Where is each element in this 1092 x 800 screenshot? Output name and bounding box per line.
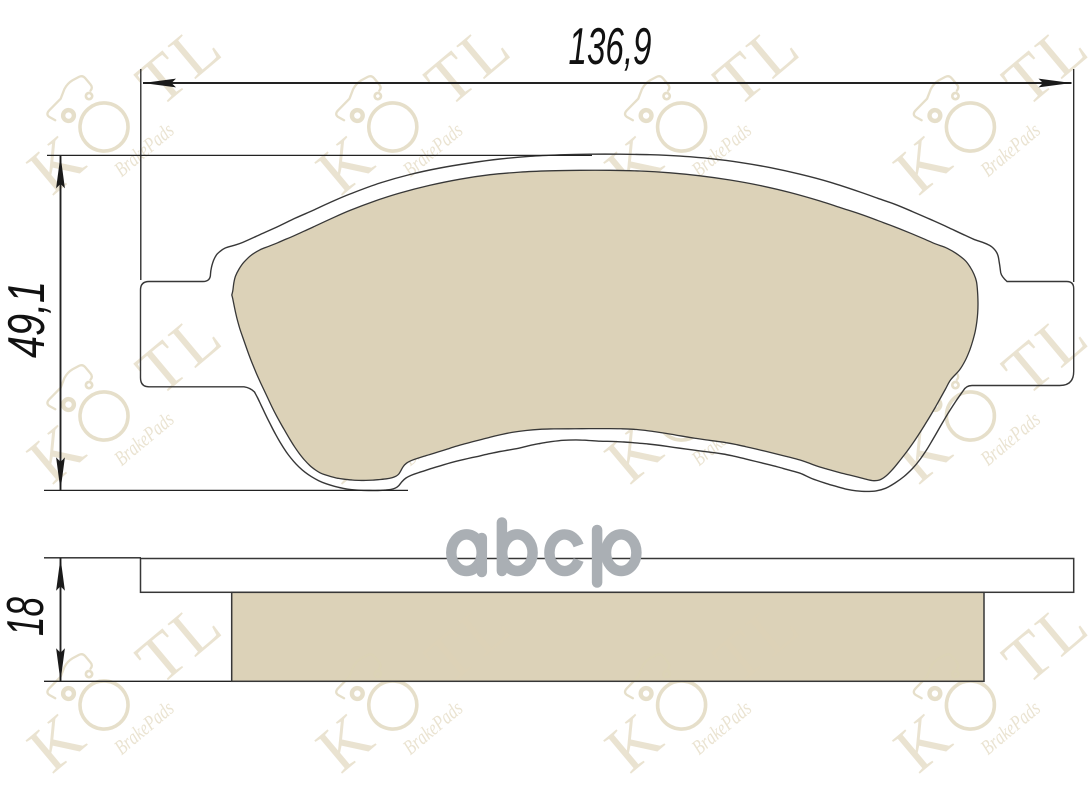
svg-text:136,9: 136,9: [569, 18, 652, 76]
svg-text:49,1: 49,1: [0, 281, 56, 358]
svg-text:18: 18: [0, 597, 55, 636]
